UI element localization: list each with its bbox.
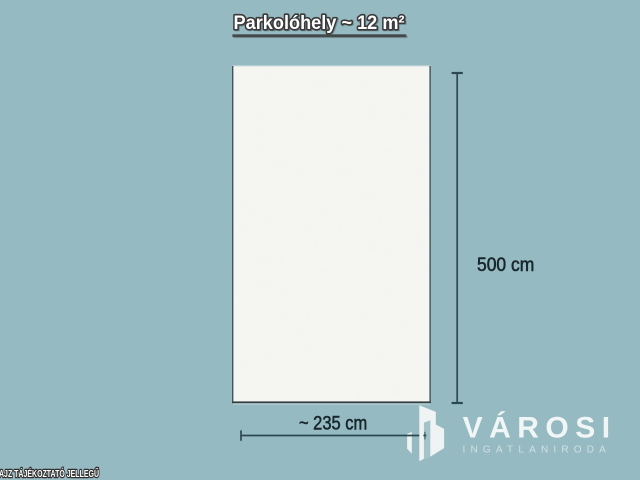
svg-text:Parkolóhely ~ 12 m²: Parkolóhely ~ 12 m²	[234, 13, 405, 34]
svg-text:INGATLANIRODA: INGATLANIRODA	[463, 445, 612, 456]
svg-text:500 cm: 500 cm	[477, 253, 534, 275]
svg-text:VÁROSI: VÁROSI	[463, 410, 617, 444]
svg-text:AJZ TÁJÉKOZTATÓ JELLEGŰ: AJZ TÁJÉKOZTATÓ JELLEGŰ	[0, 467, 99, 480]
svg-text:~ 235 cm: ~ 235 cm	[299, 412, 367, 433]
